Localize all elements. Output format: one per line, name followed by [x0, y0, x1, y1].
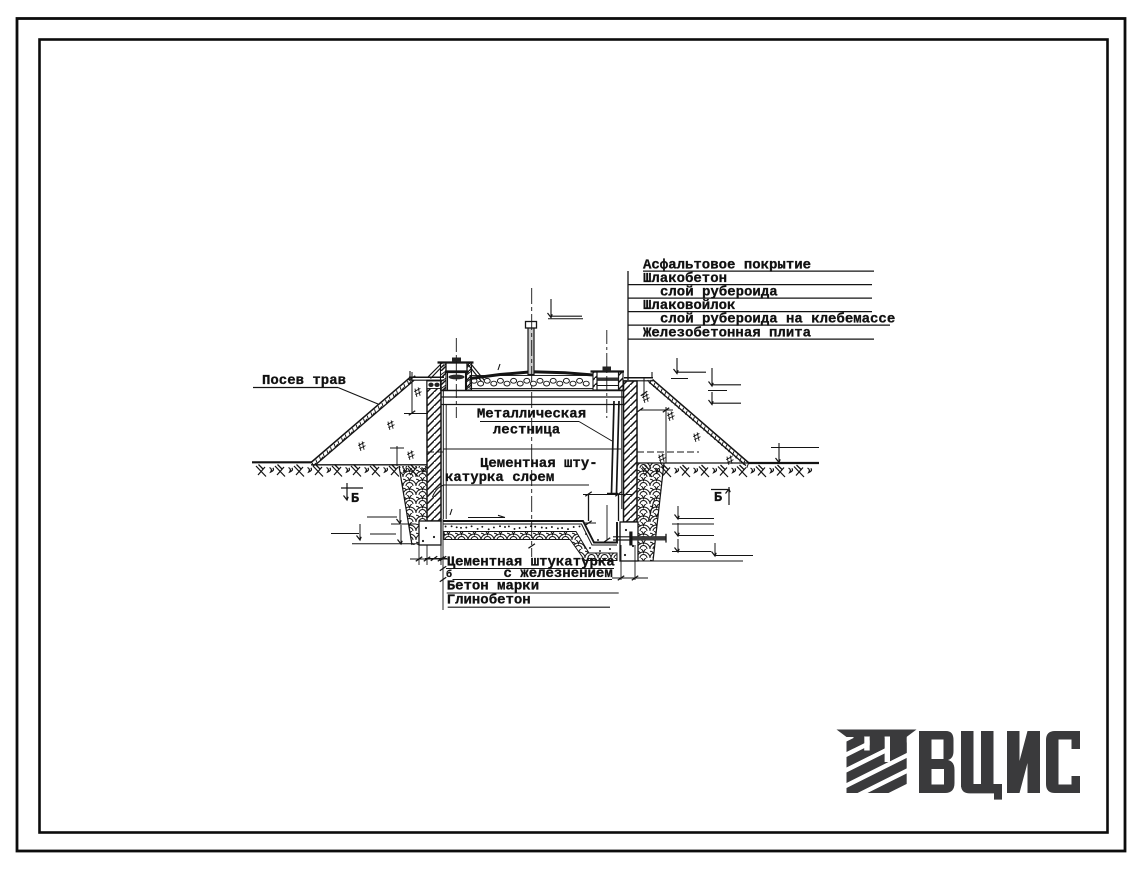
svg-text:Посев трав: Посев трав [262, 373, 346, 389]
svg-text:Металлическая: Металлическая [477, 407, 586, 423]
svg-text:Б: Б [351, 492, 359, 507]
svg-text:Б: Б [714, 491, 722, 506]
svg-text:катурка слоем: катурка слоем [445, 470, 554, 486]
svg-text:Глинобетон: Глинобетон [447, 592, 531, 608]
svg-text:лестница: лестница [493, 423, 561, 439]
